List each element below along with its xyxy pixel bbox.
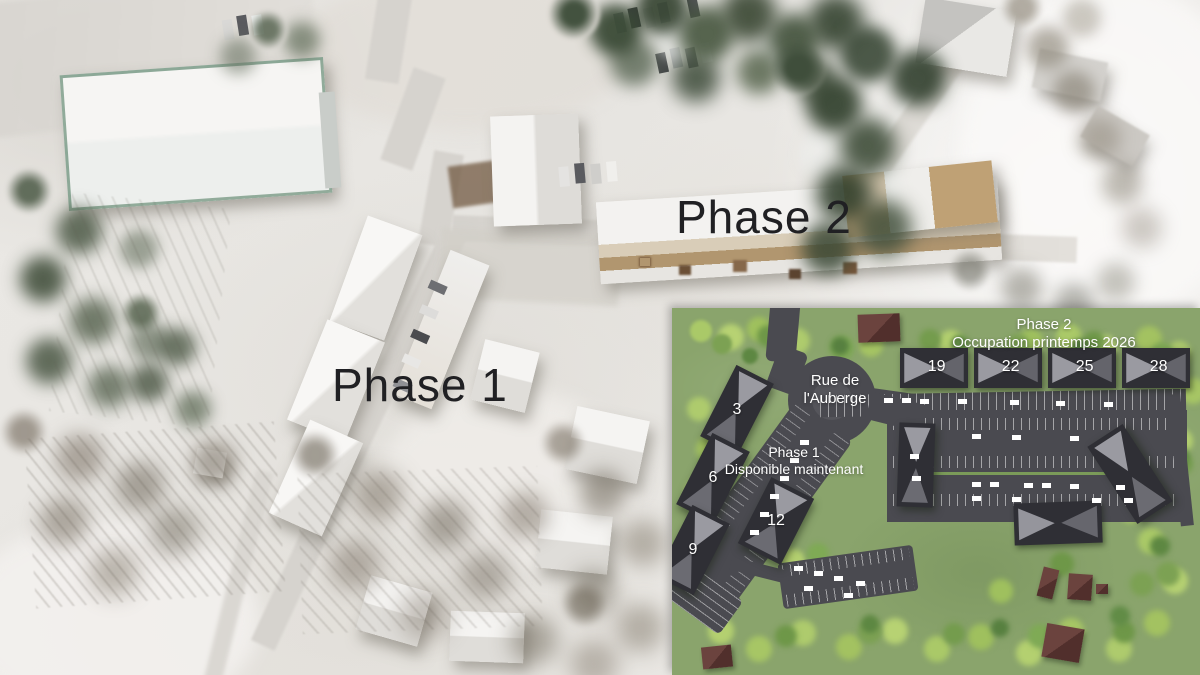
south-parking <box>777 545 918 609</box>
phase1-plan-title: Phase 1 <box>704 444 884 461</box>
phase1-plan-header: Phase 1 Disponible maintenant <box>704 444 884 477</box>
tree-shadows <box>49 192 231 428</box>
building-number: 3 <box>733 401 742 419</box>
plan-building-south <box>1013 500 1102 545</box>
construction-debris <box>640 258 650 266</box>
tree-shadows <box>24 421 285 608</box>
plan-building-19: 19 <box>900 348 968 388</box>
parked-cars <box>640 53 654 75</box>
shed <box>1041 623 1084 663</box>
site-plan-inset: 19 22 25 28 3 6 12 9 <box>672 308 1200 675</box>
shed <box>1096 584 1108 594</box>
evergreen-trees <box>6 168 52 214</box>
building-number: 19 <box>928 358 946 376</box>
street-name-line2: l'Auberge <box>790 390 880 408</box>
shed <box>701 644 733 669</box>
shed <box>1067 573 1093 601</box>
photo-label-phase1: Phase 1 <box>332 358 508 412</box>
parking-stalls <box>782 547 910 577</box>
plan-cars <box>672 308 681 313</box>
phase2-plan-header: Phase 2 Occupation printemps 2026 <box>912 316 1176 351</box>
evergreen-trees <box>770 40 826 96</box>
plan-trees-dark <box>742 348 758 364</box>
phase2-plan-subtitle: Occupation printemps 2026 <box>912 334 1176 352</box>
plan-building-west <box>897 422 936 507</box>
parking-stalls <box>893 418 1181 430</box>
photo-label-phase2: Phase 2 <box>676 190 852 244</box>
evergreen-trees <box>248 10 288 50</box>
plan-trees-mid <box>712 334 732 354</box>
aerial-overview: Phase 1 Phase 2 <box>0 0 1200 675</box>
street-name-label: Rue de l'Auberge <box>790 372 880 407</box>
plan-building-25: 25 <box>1048 348 1116 388</box>
building-number: 28 <box>1150 358 1168 376</box>
phase1-plan-subtitle: Disponible maintenant <box>704 461 884 478</box>
street-name-line1: Rue de <box>790 372 880 390</box>
phase2-plan-title: Phase 2 <box>912 316 1176 334</box>
bare-trees <box>540 420 586 466</box>
warehouse-building <box>60 57 333 211</box>
lodge-building <box>490 113 582 226</box>
building-number: 22 <box>1002 358 1020 376</box>
parking-stalls <box>786 577 914 607</box>
plan-trees-bright <box>690 320 712 342</box>
building-number: 12 <box>767 512 785 530</box>
building-number: 9 <box>689 541 698 559</box>
evergreen-trees <box>948 248 992 292</box>
building-number: 25 <box>1076 358 1094 376</box>
bare-trees <box>560 580 608 628</box>
tree-shadows <box>297 466 542 634</box>
shed <box>1037 567 1060 600</box>
plan-building-22: 22 <box>974 348 1042 388</box>
house <box>535 509 613 574</box>
plan-building-28: 28 <box>1122 348 1190 388</box>
parked-cars <box>542 166 554 187</box>
shed <box>858 313 901 342</box>
